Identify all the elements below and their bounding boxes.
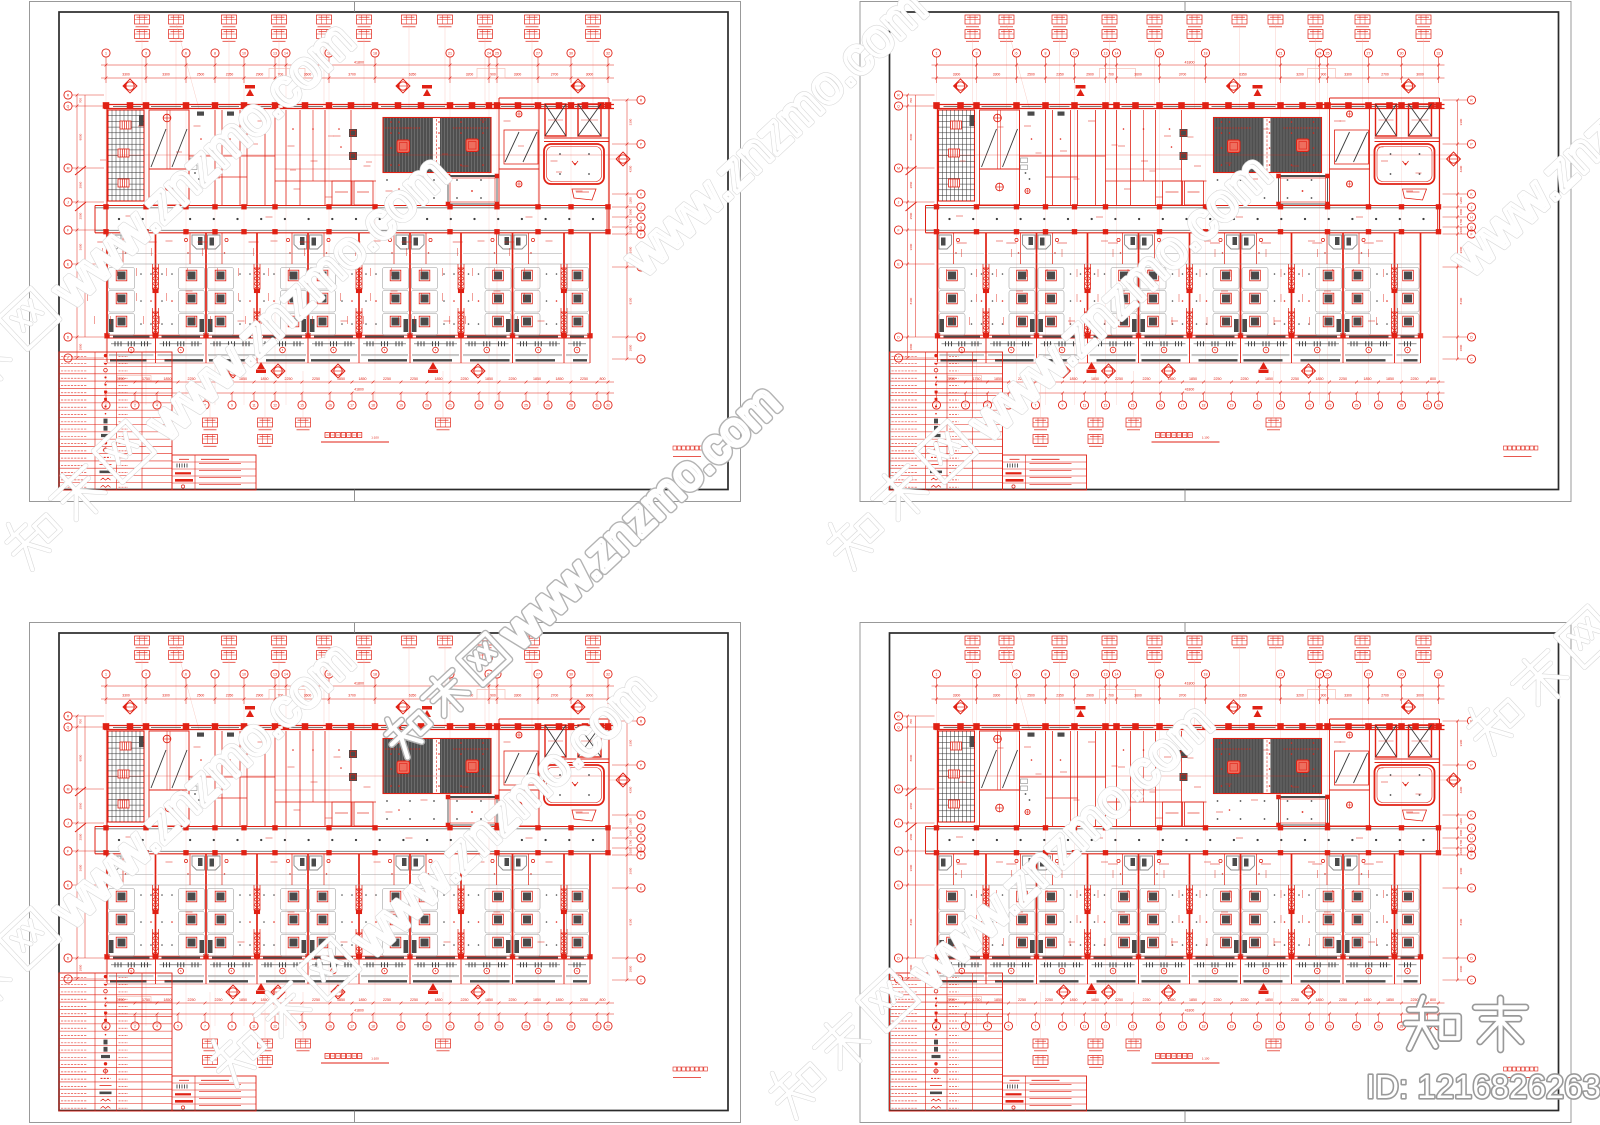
svg-text:ID: 1216826263: ID: 1216826263 <box>1366 1068 1600 1105</box>
